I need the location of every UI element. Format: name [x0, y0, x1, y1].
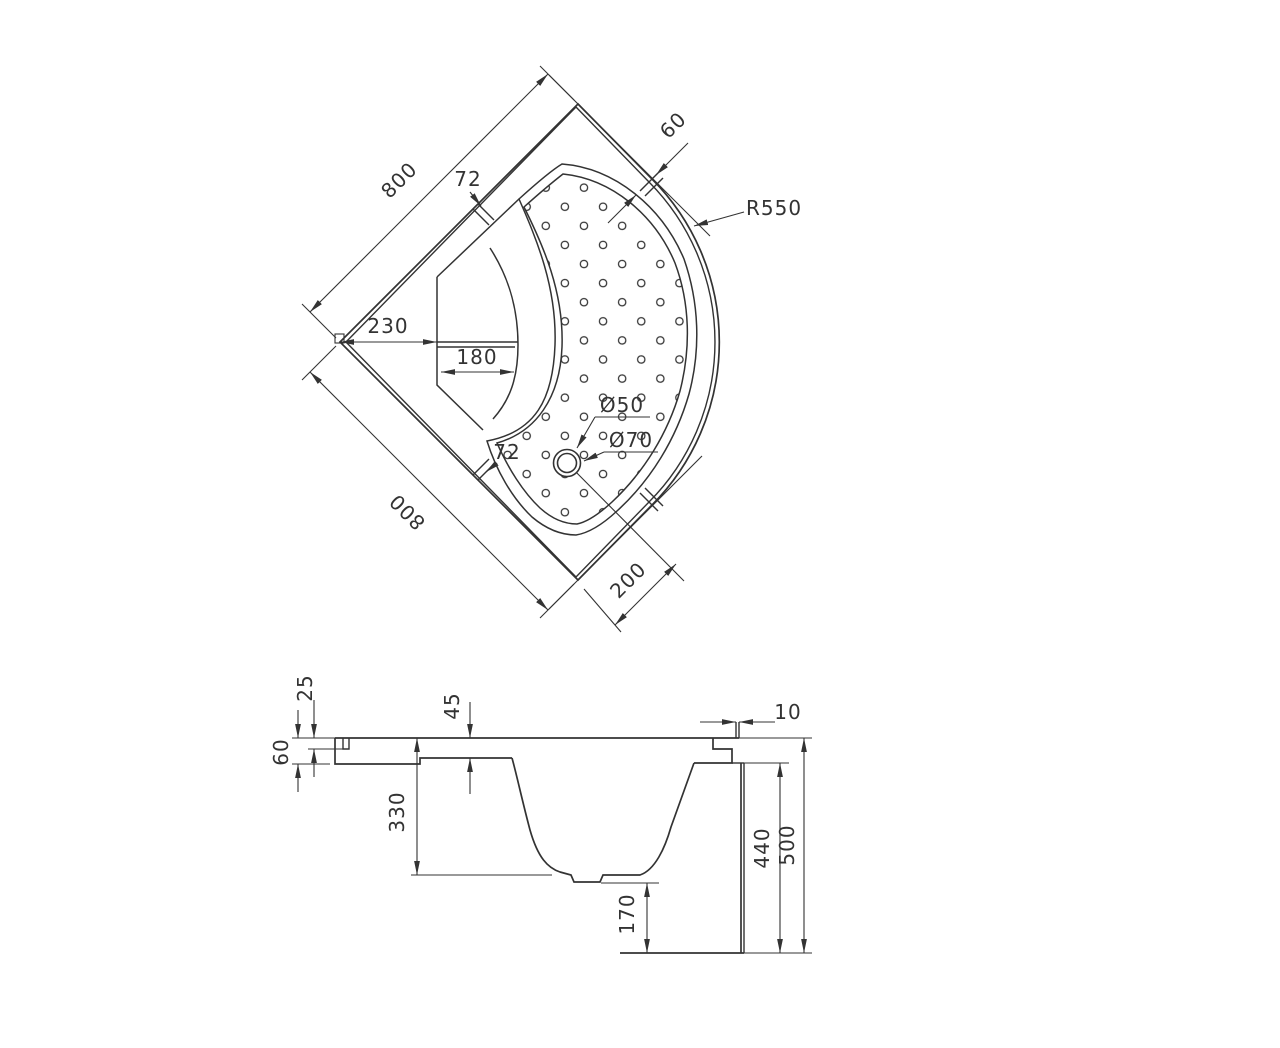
dim-180-label: 180 — [456, 345, 497, 369]
seat-front-arc — [490, 248, 518, 419]
dim-170-label: 170 — [615, 893, 639, 934]
dim-170: 170 — [601, 883, 659, 953]
dim-drain-50-label: Ø50 — [600, 393, 644, 417]
dim-10-label: 10 — [774, 700, 801, 724]
dim-72-top-label: 72 — [454, 167, 481, 191]
top-view: 800 800 230 180 72 72 — [302, 66, 802, 632]
dim-230-label: 230 — [367, 314, 408, 338]
dim-r550-label: R550 — [746, 196, 802, 220]
dim-230: 230 — [335, 314, 437, 343]
dim-45: 45 — [440, 692, 470, 794]
seat-lip-line — [437, 199, 519, 277]
technical-drawing-page: 800 800 230 180 72 72 — [0, 0, 1280, 1048]
section-basin-profile — [512, 758, 694, 882]
section-right-rim — [694, 738, 732, 763]
dim-200-cut: 200 — [584, 557, 676, 632]
section-left-flange — [335, 738, 512, 764]
dim-60-flange: 60 — [269, 710, 336, 792]
dim-60-flange-label: 60 — [269, 738, 293, 765]
dim-500-label: 500 — [775, 824, 799, 865]
dim-45-label: 45 — [440, 692, 464, 719]
section-glass-groove — [343, 738, 349, 749]
dim-72-bottom-label: 72 — [493, 440, 520, 464]
dim-10: 10 — [700, 700, 802, 724]
drain-inner-circle — [558, 454, 577, 473]
shower-tray-drawing: 800 800 230 180 72 72 — [0, 0, 1280, 1048]
dim-180: 180 — [441, 345, 514, 372]
dim-25-label: 25 — [293, 674, 317, 701]
section-view: 25 60 45 330 170 440 — [269, 674, 812, 953]
dim-drain-70-label: Ø70 — [609, 428, 653, 452]
dim-330-label: 330 — [385, 791, 409, 832]
dim-800-top-label: 800 — [376, 157, 422, 203]
dim-800-bottom-label: 800 — [384, 489, 430, 535]
dim-440-label: 440 — [750, 827, 774, 868]
dim-r550: R550 — [694, 196, 802, 226]
dim-60-arc-label: 60 — [655, 107, 691, 143]
dim-72-top: 72 — [454, 167, 481, 206]
